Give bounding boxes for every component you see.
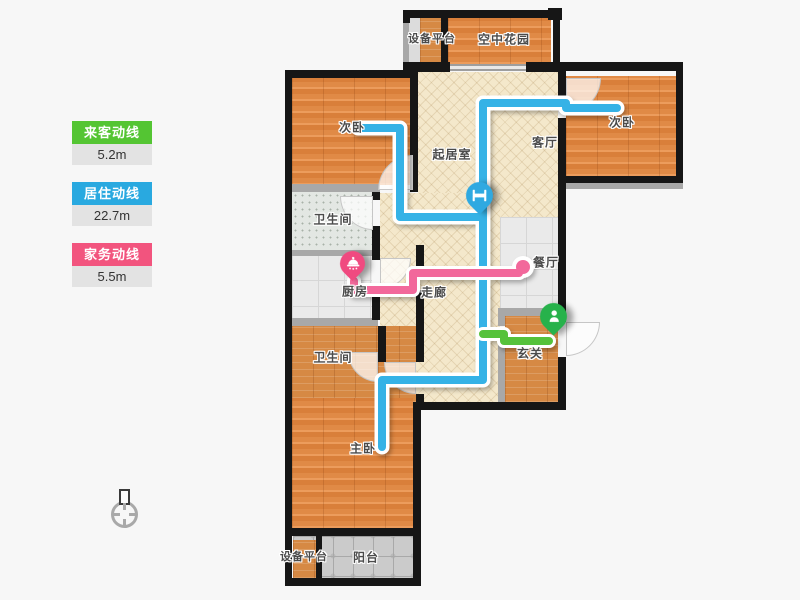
wall	[292, 318, 378, 326]
room-label-bedroom-left: 次卧	[339, 119, 365, 136]
bed-icon	[471, 187, 488, 204]
legend-housework-route[interactable]: 家务动线 5.5m	[72, 243, 152, 287]
wall	[558, 118, 566, 322]
master-bedroom-floor	[292, 398, 413, 528]
legend-visitor-value: 5.2m	[72, 144, 152, 165]
wall	[558, 70, 566, 96]
wall	[403, 10, 410, 23]
room-label-kitchen: 厨房	[342, 283, 368, 300]
wall	[566, 183, 683, 189]
legend-visitor-route[interactable]: 来客动线 5.2m	[72, 121, 152, 165]
wall	[403, 10, 560, 18]
wall	[285, 70, 418, 78]
wall	[560, 62, 683, 71]
wall	[413, 402, 421, 536]
wall	[285, 320, 292, 586]
room-label-dining-room: 餐厅	[533, 254, 559, 271]
room-label-balcony: 阳台	[353, 549, 379, 566]
room-label-master-bedroom: 主卧	[350, 440, 376, 457]
wall	[566, 176, 683, 183]
wall	[372, 226, 380, 254]
room-label-lounge: 客厅	[532, 134, 558, 151]
room-label-equipment-platform-bottom: 设备平台	[280, 548, 328, 564]
pot-icon	[345, 256, 361, 272]
wall	[287, 528, 421, 536]
room-label-entrance: 玄关	[517, 345, 543, 362]
room-label-living-room: 起居室	[432, 146, 471, 163]
room-label-corridor: 走廊	[421, 284, 447, 301]
legend-visitor-label: 来客动线	[72, 121, 152, 144]
wall	[553, 18, 560, 64]
person-icon	[546, 309, 562, 325]
legend-resident-route[interactable]: 居住动线 22.7m	[72, 182, 152, 226]
legend-resident-value: 22.7m	[72, 205, 152, 226]
wall	[372, 254, 380, 260]
wall	[292, 184, 380, 192]
window	[450, 64, 526, 71]
room-label-bathroom-bottom: 卫生间	[313, 349, 352, 366]
wall	[416, 290, 424, 362]
room-label-sky-garden: 空中花园	[478, 31, 530, 48]
wall	[416, 245, 424, 268]
wall	[285, 70, 292, 330]
wall	[372, 192, 380, 200]
room-label-bathroom-top: 卫生间	[313, 211, 352, 228]
wall	[676, 62, 683, 183]
wall	[378, 326, 386, 362]
wall	[526, 62, 560, 72]
wall	[413, 402, 566, 410]
room-label-equipment-platform-top: 设备平台	[408, 30, 456, 46]
legend-housework-label: 家务动线	[72, 243, 152, 266]
front-door-arc	[566, 322, 600, 356]
wall	[498, 308, 505, 326]
room-label-bedroom-right: 次卧	[609, 114, 635, 131]
wall	[498, 344, 505, 402]
legend-housework-value: 5.5m	[72, 266, 152, 287]
wall	[372, 286, 380, 320]
legend-resident-label: 居住动线	[72, 182, 152, 205]
wall	[285, 578, 421, 586]
